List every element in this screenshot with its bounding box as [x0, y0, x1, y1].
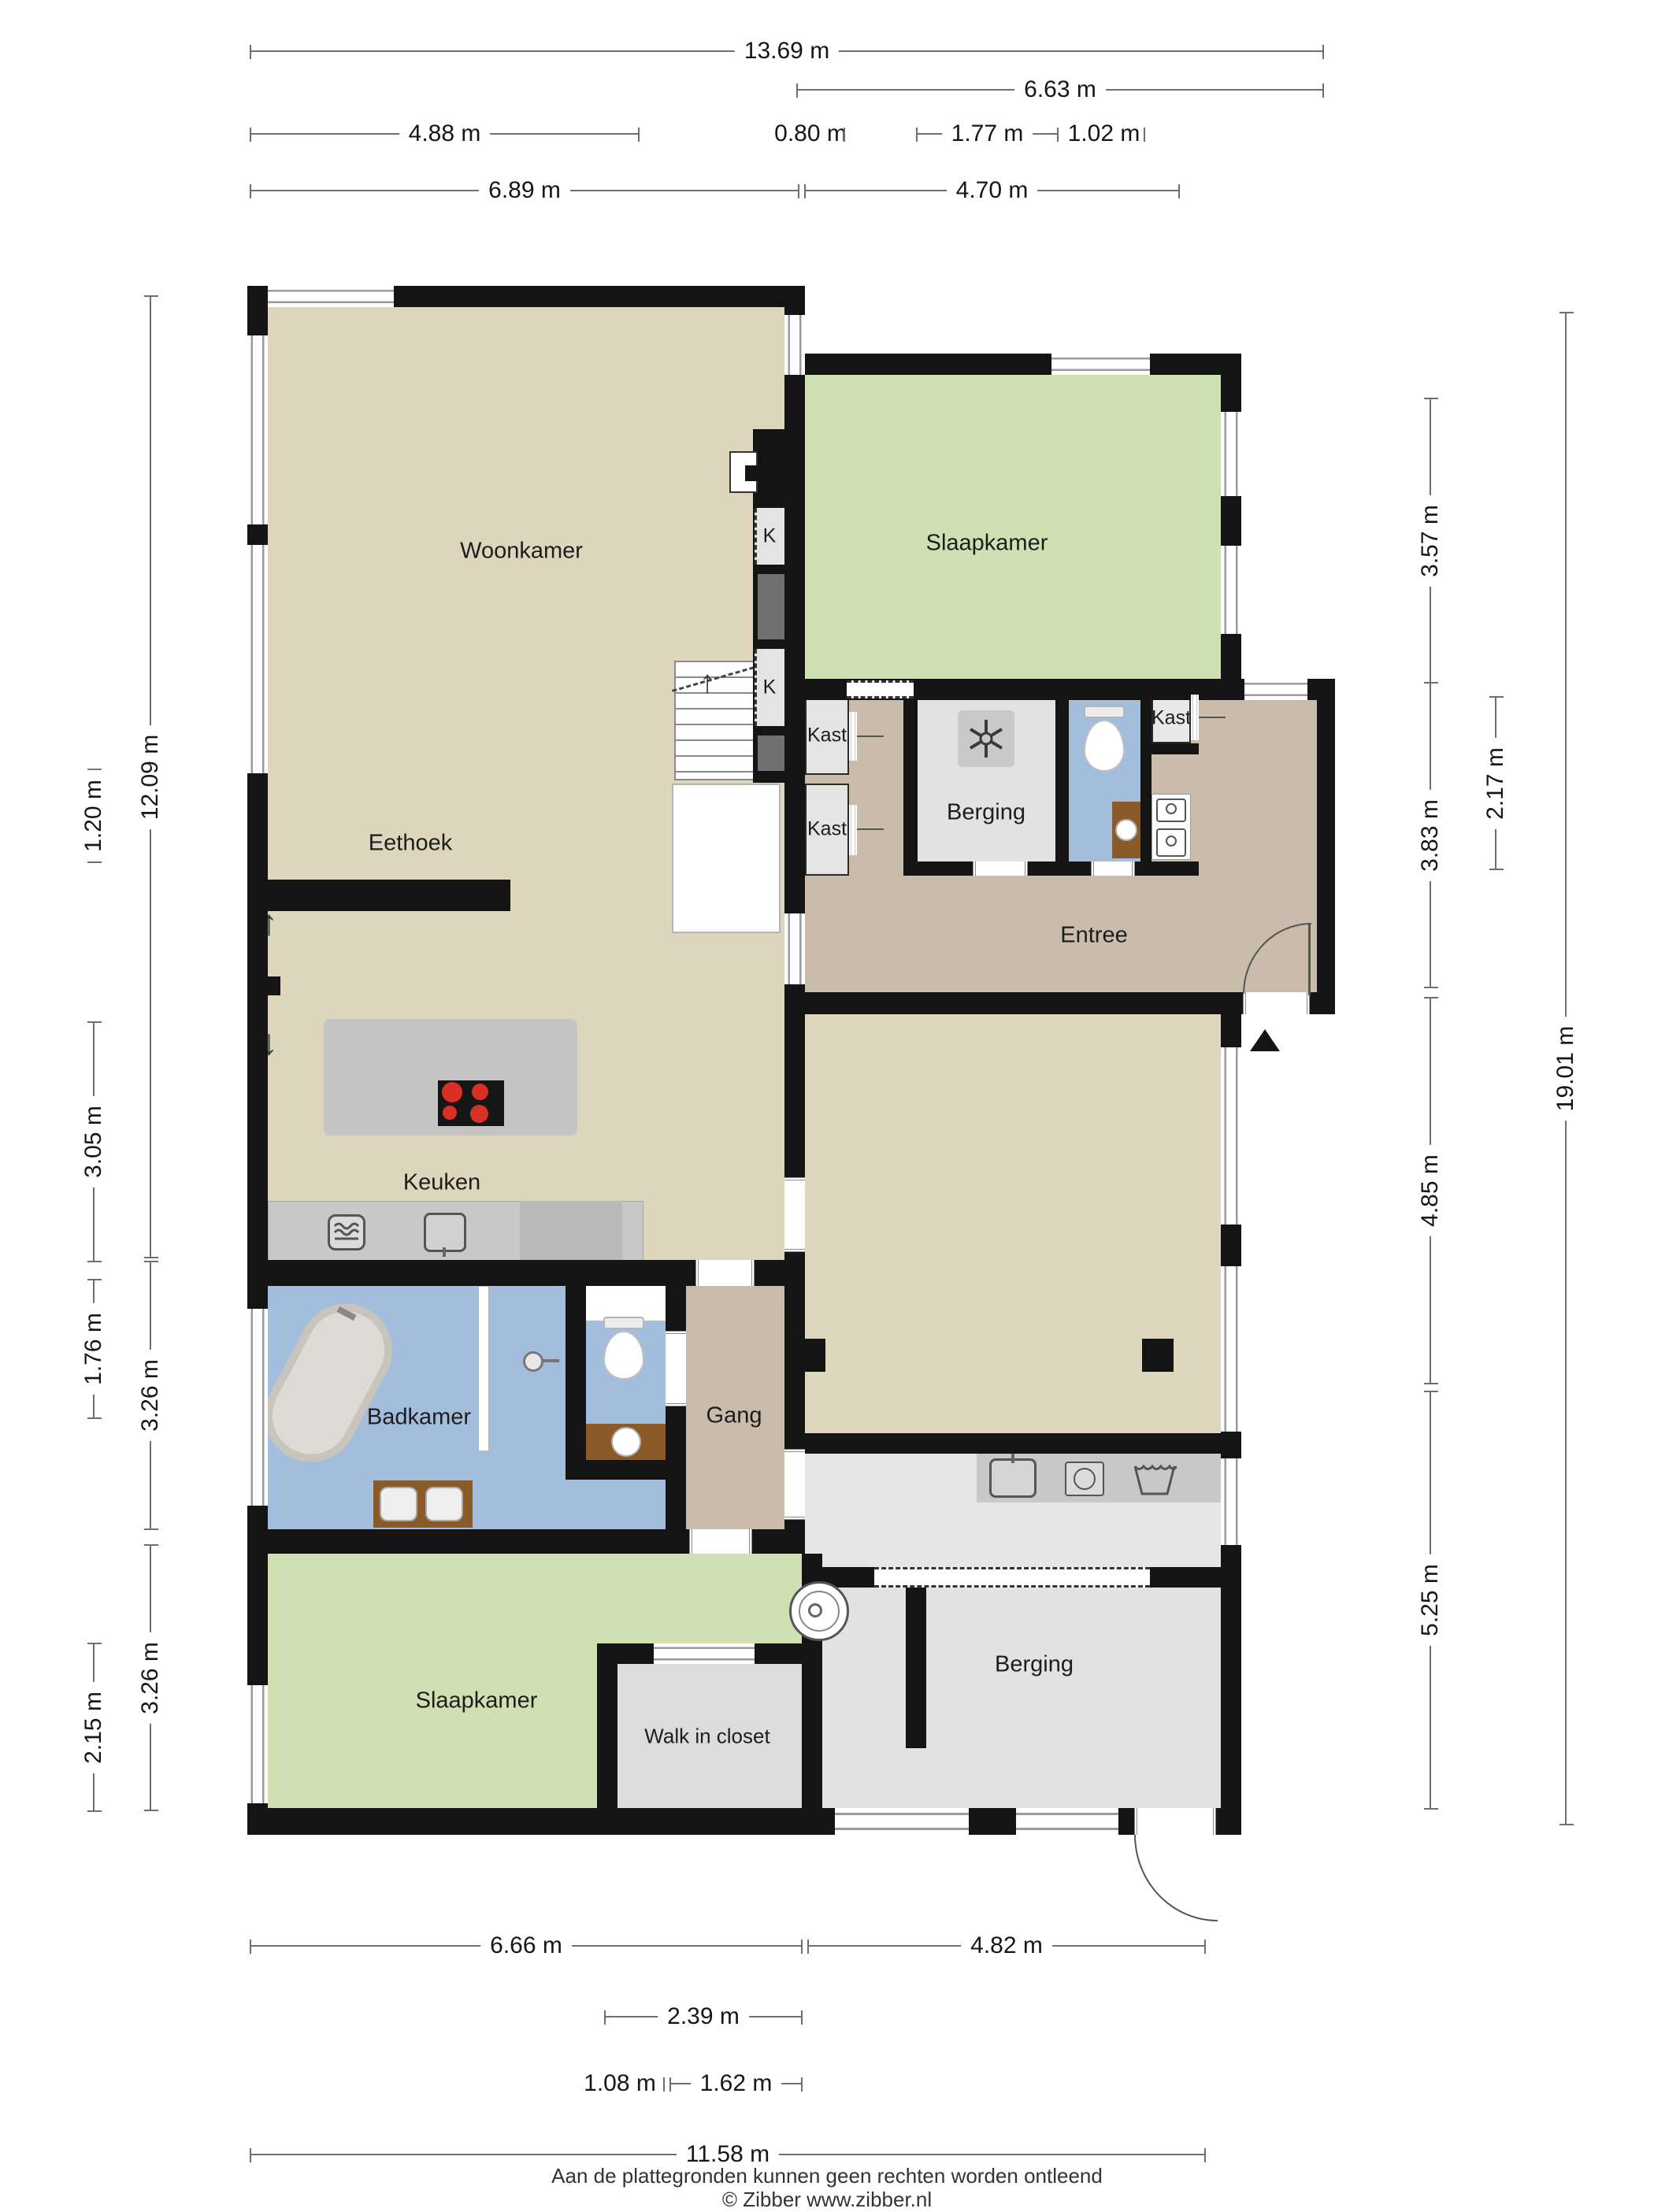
- wall: [1140, 743, 1199, 754]
- wall-stub: [805, 1339, 825, 1372]
- wall: [903, 700, 918, 861]
- kitchen-sink-icon: [424, 1213, 466, 1252]
- closet-label-kast: Kast: [807, 818, 847, 841]
- entrance-door-opening: [1243, 992, 1310, 1014]
- closet-label-k: K: [763, 525, 777, 548]
- wall: [784, 375, 805, 913]
- closet-kast-1-leader: [857, 735, 884, 737]
- window: [784, 913, 805, 984]
- fan-icon: [964, 717, 1008, 761]
- door-opening: [1091, 861, 1135, 876]
- dimension-top: 4.70 m: [805, 190, 1179, 191]
- window: [247, 545, 268, 773]
- wall: [906, 1588, 926, 1748]
- microwave-waves: [330, 1217, 363, 1248]
- closet-label-kast: Kast: [1151, 707, 1191, 730]
- wall: [803, 1433, 1221, 1454]
- dimension-left: 1.76 m: [93, 1280, 95, 1418]
- dimension-top: 0.80 m: [777, 133, 844, 135]
- dimension-top: 1.77 m: [917, 133, 1058, 135]
- column: [1142, 1339, 1174, 1372]
- door-opening: [973, 861, 1028, 876]
- dimension-top: 6.89 m: [250, 190, 799, 191]
- door-opening: [666, 1331, 686, 1406]
- window: [247, 335, 268, 524]
- berging-door-arc: [1134, 1835, 1218, 1921]
- microwave-icon: [328, 1214, 365, 1251]
- duct-cell: [758, 574, 784, 639]
- room-label-walk-in-closet: Walk in closet: [644, 1725, 770, 1749]
- dashed-opening: [874, 1567, 1150, 1588]
- dimension-left: 2.15 m: [93, 1643, 95, 1811]
- toilet-top-tank: [1084, 706, 1125, 718]
- window: [1221, 546, 1241, 634]
- room-label-slaapkamer-bottom: Slaapkamer: [416, 1688, 538, 1714]
- dimension-right-total: 19.01 m: [1565, 313, 1567, 1825]
- window: [247, 1309, 268, 1506]
- closet-label-k: K: [763, 676, 777, 699]
- dimension-left: 3.05 m: [93, 1022, 95, 1262]
- dimension-top: 4.88 m: [250, 133, 639, 135]
- cooktop-burner: [470, 1105, 488, 1123]
- sliding-door: [654, 1643, 755, 1664]
- window: [835, 1808, 969, 1835]
- window: [1244, 679, 1307, 700]
- wall: [1317, 679, 1335, 1014]
- door-opening: [784, 1449, 805, 1520]
- closet-kast-1-door: [849, 712, 857, 761]
- vanity-sink-icon: [380, 1487, 417, 1521]
- room-label-entree: Entree: [1060, 923, 1127, 949]
- window: [1051, 354, 1150, 375]
- door-opening: [689, 1529, 752, 1554]
- toilet-vanity-sink-icon: [611, 1427, 641, 1457]
- dimension-left-total: 12.09 m: [150, 296, 151, 1258]
- kitchen-counter-dark-segment: [520, 1201, 622, 1262]
- door-opening: [784, 1177, 805, 1252]
- kitchen-faucet-icon: [443, 1247, 446, 1257]
- dashed-opening: [847, 680, 914, 698]
- wall: [784, 1286, 805, 1449]
- wall: [566, 1460, 670, 1480]
- wall: [247, 880, 510, 911]
- cooktop-burner: [472, 1084, 488, 1100]
- wall: [247, 1260, 695, 1286]
- room-berging-bottom-floor: [805, 1588, 1221, 1808]
- dimension-top-total: 13.69 m: [250, 50, 1323, 52]
- window: [1191, 695, 1199, 740]
- window: [1221, 412, 1241, 496]
- window: [1016, 1808, 1118, 1835]
- dimension-right: 2.17 m: [1495, 697, 1496, 869]
- wall: [784, 984, 805, 1014]
- vanity-sink-icon: [425, 1487, 463, 1521]
- closet-kast-2-leader: [857, 828, 884, 830]
- dimension-right: 3.83 m: [1430, 683, 1431, 987]
- wall: [247, 1529, 689, 1554]
- window: [247, 1685, 268, 1803]
- footer-copyright: © Zibber www.zibber.nl: [722, 2188, 932, 2212]
- dimension-bottom: 4.82 m: [808, 1945, 1205, 1947]
- wall: [784, 1014, 805, 1177]
- wall: [1150, 1567, 1221, 1588]
- utility-sink-icon: [989, 1458, 1037, 1498]
- washer-drum: [1074, 1468, 1096, 1490]
- window: [784, 315, 805, 375]
- room-label-gang: Gang: [706, 1403, 762, 1429]
- closet-kast-tr-leader: [1199, 717, 1226, 718]
- room-bedroom-top-floor: [805, 375, 1221, 679]
- dimension-top: 6.63 m: [797, 89, 1323, 91]
- dimension-bottom: 2.39 m: [605, 2016, 802, 2017]
- wall: [1140, 700, 1151, 861]
- laundry-basket-icon: [1133, 1460, 1177, 1496]
- toilet-tank: [603, 1317, 644, 1329]
- room-label-badkamer: Badkamer: [367, 1405, 471, 1431]
- shower-head-icon: [523, 1351, 543, 1372]
- north-arrow-icon: [1250, 1029, 1280, 1051]
- boiler-dial: [1166, 803, 1177, 814]
- dimension-right: 4.85 m: [1430, 998, 1431, 1384]
- wall: [752, 1529, 805, 1554]
- cooktop-burner: [443, 1106, 457, 1120]
- room-label-slaapkamer-top: Slaapkamer: [926, 531, 1048, 557]
- wall: [566, 1286, 586, 1480]
- dimension-right: 3.57 m: [1430, 398, 1431, 683]
- window: [1221, 1266, 1241, 1432]
- footer-disclaimer: Aan de plattegronden kunnen geen rechten…: [551, 2164, 1103, 2188]
- closet-label-kast: Kast: [807, 724, 847, 747]
- window: [1221, 1458, 1241, 1545]
- chimney-notch: [745, 465, 758, 481]
- room-label-eethoek: Eethoek: [369, 831, 452, 857]
- berging-door-opening: [1134, 1808, 1216, 1835]
- wall: [755, 1260, 805, 1286]
- dimension-left: 3.26 m: [150, 1262, 151, 1529]
- window: [1221, 1047, 1241, 1225]
- washing-machine-door: [808, 1603, 822, 1617]
- toilet-top-sink-icon: [1115, 819, 1137, 841]
- meter-dial: [1166, 836, 1177, 847]
- cooktop-burner: [442, 1082, 462, 1102]
- utility-faucet-icon: [1011, 1454, 1014, 1463]
- dimension-bottom-total: 11.58 m: [250, 2154, 1205, 2155]
- stair-landing: [672, 784, 781, 933]
- dimension-bottom: 6.66 m: [250, 1945, 802, 1947]
- dimension-left: 1.20 m: [93, 769, 95, 862]
- dimension-top: 1.02 m: [1063, 133, 1144, 135]
- wall: [903, 861, 1199, 876]
- window: [268, 286, 394, 307]
- room-label-berging-bottom: Berging: [995, 1652, 1074, 1678]
- wall: [666, 1286, 686, 1331]
- dimension-bottom: 1.08 m: [576, 2083, 664, 2084]
- room-label-woonkamer: Woonkamer: [460, 539, 583, 565]
- room-label-berging-top: Berging: [947, 800, 1025, 826]
- stairs-up-arrow-icon: ↑: [699, 666, 715, 698]
- dimension-left: 3.26 m: [150, 1545, 151, 1810]
- wall: [1055, 700, 1069, 861]
- door-opening: [695, 1260, 755, 1286]
- wall: [1221, 354, 1241, 700]
- closet-kast-2-door: [849, 805, 857, 855]
- room-label-keuken: Keuken: [403, 1170, 480, 1196]
- wall: [597, 1643, 617, 1808]
- shower-arm-icon: [542, 1359, 559, 1362]
- dimension-right: 5.25 m: [1430, 1391, 1431, 1809]
- wall: [784, 354, 1241, 375]
- toilet-niche: [586, 1286, 670, 1321]
- floor-plan: ↑ ↑ ↓: [0, 0, 1654, 2205]
- duct-cell: [758, 735, 784, 771]
- dimension-bottom: 1.62 m: [670, 2083, 802, 2084]
- shower-partition: [478, 1286, 489, 1451]
